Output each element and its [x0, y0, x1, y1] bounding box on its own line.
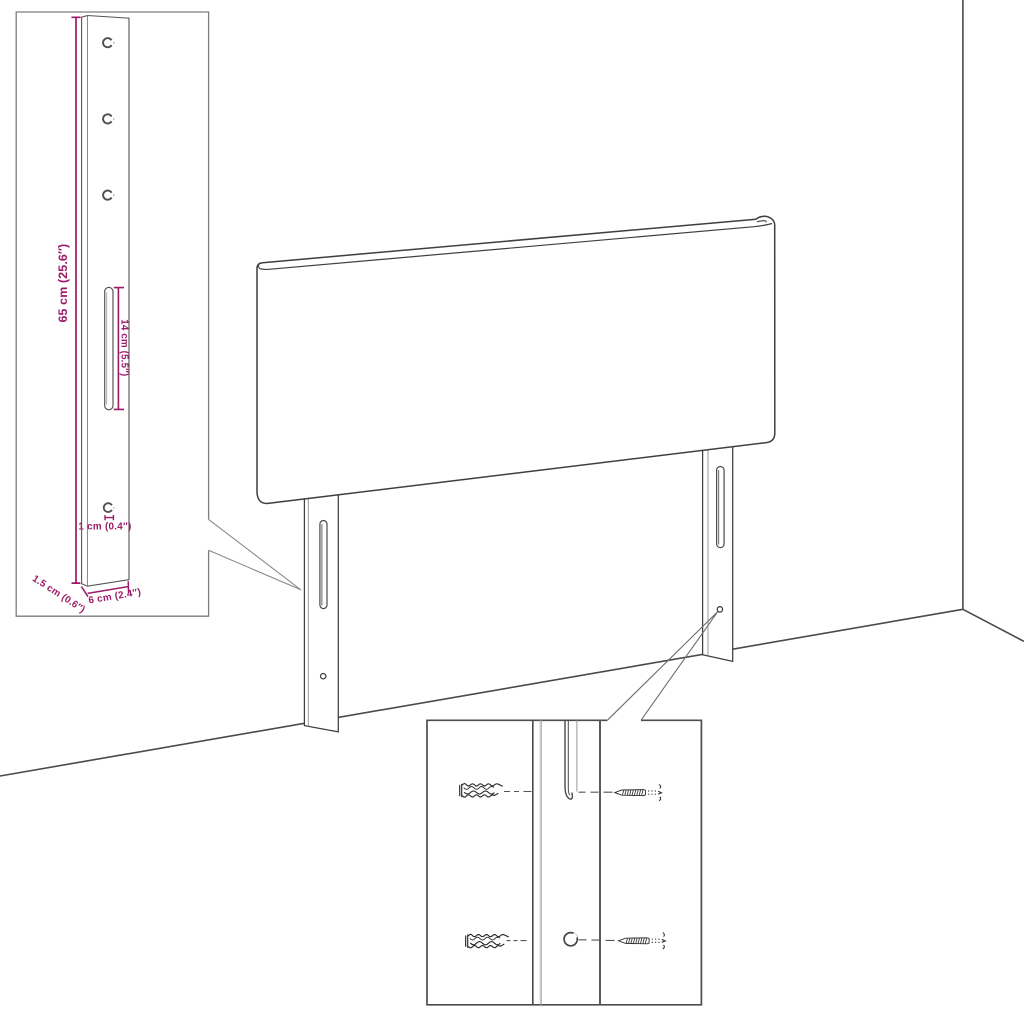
svg-text:1 cm (0.4″): 1 cm (0.4″): [78, 522, 131, 533]
svg-text:65 cm (25.6″): 65 cm (25.6″): [56, 244, 70, 323]
svg-text:14 cm (5.5″): 14 cm (5.5″): [118, 319, 129, 376]
